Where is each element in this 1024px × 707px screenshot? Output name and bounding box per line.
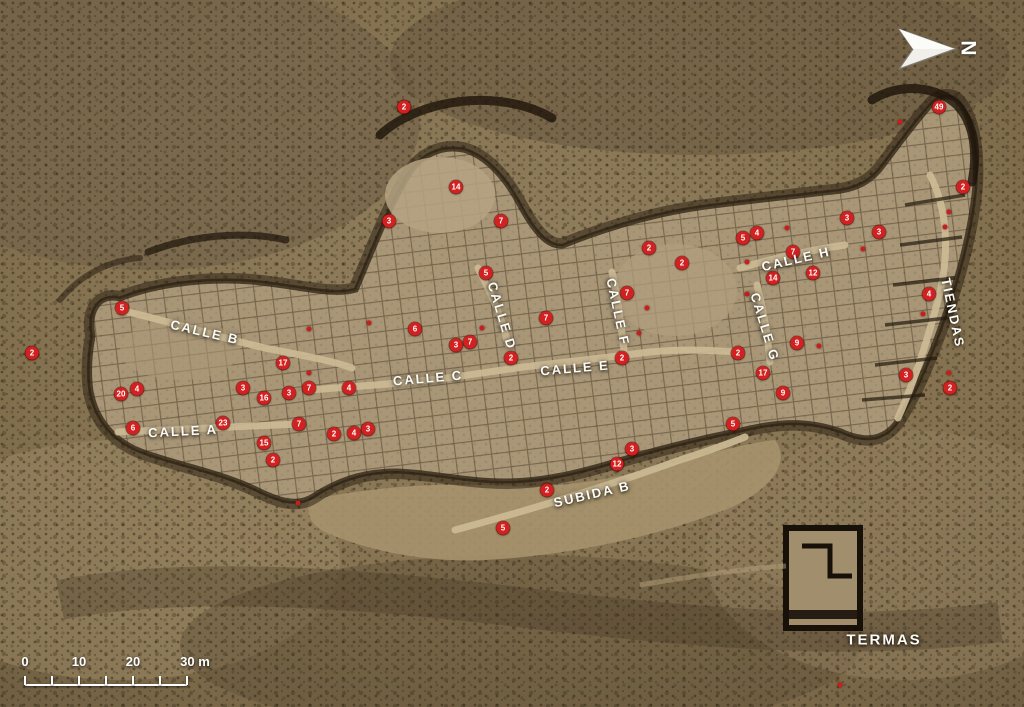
site-marker-3: 3 [626,443,639,456]
site-marker-7: 7 [495,215,508,228]
site-marker-2: 2 [944,382,957,395]
site-marker-17: 17 [757,367,770,380]
street-label-calle-g: CALLE G [747,291,782,363]
site-marker-12: 12 [807,267,820,280]
annotation-overlay: 2143755242061731637231527243463727722254… [0,0,1024,707]
street-label-subida-b: SUBIDA B [552,478,632,510]
site-marker-2: 2 [676,257,689,270]
street-label-calle-d: CALLE D [485,280,520,352]
site-marker-5: 5 [116,302,129,315]
site-dot [785,226,790,231]
site-marker-4: 4 [343,382,356,395]
site-marker-4: 4 [131,383,144,396]
site-marker-14: 14 [450,181,463,194]
north-arrow-icon [898,28,958,72]
scale-bar-tick [186,676,188,685]
site-marker-7: 7 [303,382,316,395]
street-label-tiendas: TIENDAS [938,277,967,350]
site-marker-2: 2 [328,428,341,441]
site-marker-2: 2 [26,347,39,360]
site-marker-3: 3 [841,212,854,225]
scale-bar-label: 30 m [180,654,210,669]
site-marker-3: 3 [362,423,375,436]
site-marker-5: 5 [480,267,493,280]
site-marker-9: 9 [777,387,790,400]
site-marker-9: 9 [791,337,804,350]
scale-bar-label: 10 [72,654,86,669]
site-marker-4: 4 [348,427,361,440]
site-marker-3: 3 [873,226,886,239]
site-marker-3: 3 [450,339,463,352]
site-dot [943,225,948,230]
site-marker-7: 7 [540,312,553,325]
site-dot [745,260,750,265]
scale-bar-label: 0 [21,654,28,669]
site-marker-4: 4 [751,227,764,240]
site-marker-2: 2 [267,454,280,467]
north-indicator: N [898,26,988,74]
site-marker-5: 5 [727,418,740,431]
scale-bar-tick [51,676,53,685]
site-marker-16: 16 [258,392,271,405]
site-dot [637,331,642,336]
site-marker-23: 23 [217,417,230,430]
site-dot [296,501,301,506]
site-marker-5: 5 [497,522,510,535]
site-dot [861,247,866,252]
site-dot [307,327,312,332]
street-label-calle-c: CALLE C [392,367,463,388]
scale-bar-tick [132,676,134,685]
site-marker-5: 5 [737,232,750,245]
site-marker-2: 2 [398,101,411,114]
site-marker-2: 2 [643,242,656,255]
site-dot [307,371,312,376]
site-marker-2: 2 [505,352,518,365]
site-marker-3: 3 [283,387,296,400]
site-dot [898,120,903,125]
scale-bar-tick [159,676,161,685]
site-marker-6: 6 [127,422,140,435]
scale-bar-tick [78,676,80,685]
site-map: 2143755242061731637231527243463727722254… [0,0,1024,707]
site-dot [645,306,650,311]
site-marker-7: 7 [293,418,306,431]
site-dot [921,312,926,317]
north-letter: N [956,40,980,55]
site-marker-14: 14 [767,272,780,285]
site-marker-7: 7 [464,336,477,349]
site-marker-3: 3 [237,382,250,395]
street-label-calle-b: CALLE B [169,317,241,347]
site-dot [947,210,952,215]
site-marker-20: 20 [115,388,128,401]
site-marker-15: 15 [258,437,271,450]
site-dot [947,371,952,376]
site-marker-6: 6 [409,323,422,336]
site-dot [367,321,372,326]
site-marker-2: 2 [957,181,970,194]
scale-bar-tick [105,676,107,685]
scale-bar-label: 20 [126,654,140,669]
site-marker-3: 3 [383,215,396,228]
street-label-termas: TERMAS [846,632,921,649]
site-marker-2: 2 [732,347,745,360]
site-marker-3: 3 [900,369,913,382]
site-marker-49: 49 [933,101,946,114]
site-marker-2: 2 [616,352,629,365]
scale-bar-tick [24,676,26,685]
site-marker-17: 17 [277,357,290,370]
street-label-calle-a: CALLE A [148,422,219,441]
site-dot [817,344,822,349]
site-dot [838,683,843,688]
site-marker-12: 12 [611,458,624,471]
street-label-calle-e: CALLE E [540,357,611,378]
site-marker-4: 4 [923,288,936,301]
site-dot [480,326,485,331]
